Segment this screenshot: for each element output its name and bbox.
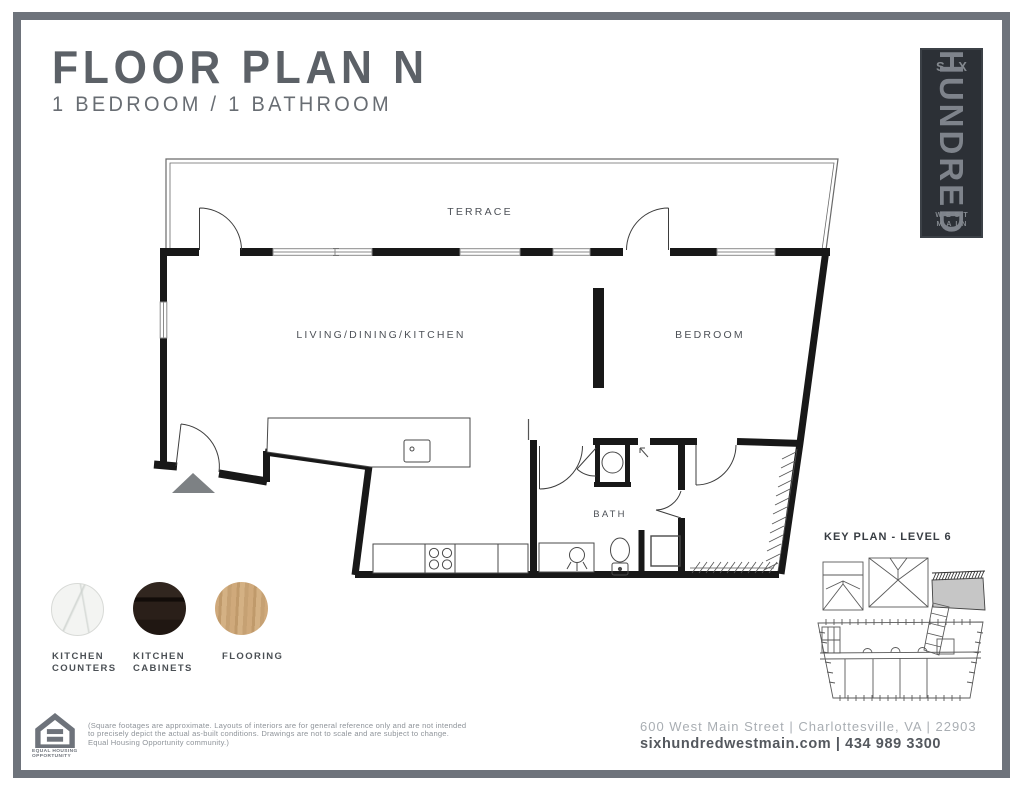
flooring-label: FLOORING (222, 651, 283, 663)
shower (651, 536, 680, 566)
bedroom-label: BEDROOM (675, 329, 745, 341)
key-plan: KEY PLAN - LEVEL 6 (818, 531, 985, 701)
key-plan-title: KEY PLAN - LEVEL 6 (824, 531, 952, 543)
kitchen-cabinets-label: KITCHEN CABINETS (133, 651, 193, 675)
closet-door (696, 445, 736, 485)
bedroom-partition-wall (593, 288, 604, 388)
disclaimer-text: (Square footages are approximate. Layout… (88, 722, 466, 747)
kitchen-counter (373, 544, 528, 573)
island-sink (404, 440, 430, 462)
street-address: 600 West Main Street | Charlottesville, … (640, 719, 977, 734)
website-phone: sixhundredwestmain.com | 434 989 3300 (640, 736, 977, 752)
bath-label: BATH (593, 509, 626, 520)
unit-walls (154, 248, 830, 576)
niche-arrow (640, 448, 648, 457)
footer-address: 600 West Main Street | Charlottesville, … (640, 719, 977, 752)
entry-door (176, 424, 219, 472)
equal-housing-logo (33, 712, 77, 748)
kitchen-cabinets-swatch (133, 582, 186, 635)
toilet-bowl (611, 538, 630, 562)
floor-plan-page: FLOOR PLAN N 1 BEDROOM / 1 BATHROOM SIX … (0, 0, 1024, 791)
kitchen-counters-label: KITCHEN COUNTERS (52, 651, 117, 675)
equal-housing-text: EQUAL HOUSING OPPORTUNITY (32, 749, 78, 760)
entry-arrow (172, 473, 215, 493)
living-label: LIVING/DINING/KITCHEN (296, 329, 465, 341)
flooring-swatch (215, 582, 268, 635)
terrace-door-left (200, 208, 242, 250)
terrace-label: TERRACE (447, 206, 513, 218)
windows (160, 249, 775, 338)
washer (602, 452, 623, 473)
bath-entry-door (540, 446, 583, 489)
closet-hatching (690, 449, 797, 573)
terrace-door-right (627, 208, 669, 250)
toilet-room-door (656, 491, 681, 518)
kitchen-counters-swatch (51, 583, 104, 636)
